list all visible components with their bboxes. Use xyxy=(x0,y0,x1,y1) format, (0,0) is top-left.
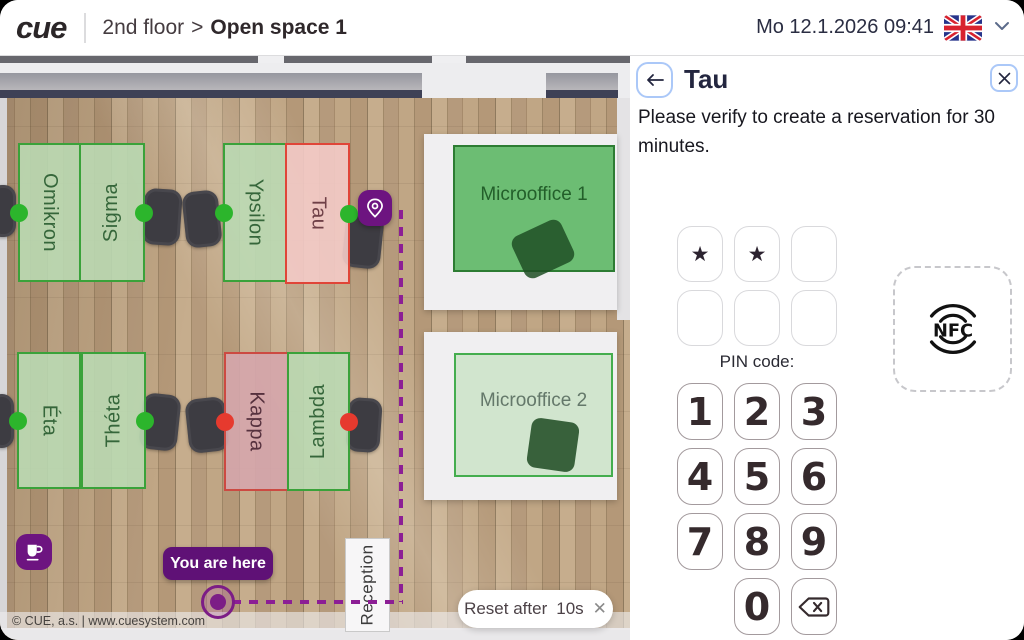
desk-sigma[interactable]: Sigma xyxy=(79,143,145,282)
breadcrumb-floor[interactable]: 2nd floor xyxy=(102,16,184,40)
microoffice-2-label: Microoffice 2 xyxy=(480,390,587,412)
desk-label: Kappa xyxy=(245,391,268,451)
backspace-icon xyxy=(797,595,831,619)
destination-pin-icon xyxy=(358,190,392,226)
key-4[interactable]: 4 xyxy=(677,448,723,505)
desk-omikron[interactable]: Omikron xyxy=(18,143,81,282)
coffee-point-button[interactable] xyxy=(16,534,52,570)
reception-label: Reception xyxy=(358,544,378,625)
window-glass xyxy=(546,73,618,90)
desk-eta[interactable]: Éta xyxy=(17,352,81,489)
window-glass xyxy=(0,73,422,90)
cue-logo: cue xyxy=(16,10,66,46)
desk-label: Lambda xyxy=(307,384,330,459)
route-path-horizontal xyxy=(232,600,403,604)
desk-status-dot xyxy=(216,413,234,431)
key-spacer xyxy=(677,578,723,635)
datetime-label: Mo 12.1.2026 09:41 xyxy=(756,16,934,39)
breadcrumb-separator: > xyxy=(191,16,203,40)
key-7[interactable]: 7 xyxy=(677,513,723,570)
numeric-keypad: 1 2 3 4 5 6 7 8 9 0 xyxy=(677,383,837,635)
pin-digit-box xyxy=(677,290,723,346)
close-button[interactable] xyxy=(990,64,1018,92)
desk-status-dot xyxy=(135,204,153,222)
pin-digit-box xyxy=(791,290,837,346)
desk-theta[interactable]: Théta xyxy=(81,352,146,489)
key-backspace[interactable] xyxy=(791,578,837,635)
window-sill xyxy=(546,90,618,98)
room-booking-app: cue 2nd floor > Open space 1 Mo 12.1.202… xyxy=(0,0,1024,640)
desk-status-dot xyxy=(136,412,154,430)
desk-status-dot xyxy=(340,413,358,431)
right-wall xyxy=(617,98,630,320)
pin-digit-box xyxy=(734,290,780,346)
reset-countdown-button[interactable]: Reset after 10s ✕ xyxy=(458,590,613,628)
desk-label: Omikron xyxy=(38,173,61,252)
left-wall xyxy=(0,98,7,630)
desk-label: Éta xyxy=(38,405,61,437)
desk-tau[interactable]: Tau xyxy=(285,143,350,284)
key-0[interactable]: 0 xyxy=(734,578,780,635)
coffee-cup-icon xyxy=(23,542,45,562)
window-sill xyxy=(0,90,430,98)
desk-label: Sigma xyxy=(100,183,123,242)
pin-digit-box: ★ xyxy=(677,226,723,282)
copyright-text: © CUE, a.s. | www.cuesystem.com xyxy=(12,612,205,630)
wall-section xyxy=(618,73,630,98)
pin-code-label: PIN code: xyxy=(677,352,837,372)
pin-digit-box xyxy=(791,226,837,282)
key-8[interactable]: 8 xyxy=(734,513,780,570)
reset-close-icon[interactable]: ✕ xyxy=(593,599,607,619)
desk-status-dot xyxy=(340,205,358,223)
key-3[interactable]: 3 xyxy=(791,383,837,440)
back-button[interactable] xyxy=(636,62,673,98)
office-chair xyxy=(526,417,580,473)
nfc-verify-button[interactable]: NFC xyxy=(893,266,1012,392)
uk-flag-icon[interactable] xyxy=(944,15,982,41)
breadcrumb-room: Open space 1 xyxy=(210,16,347,40)
pin-digit-box: ★ xyxy=(734,226,780,282)
desk-label: Tau xyxy=(306,197,329,231)
desk-label: Théta xyxy=(102,394,125,448)
key-5[interactable]: 5 xyxy=(734,448,780,505)
current-location-dot xyxy=(210,594,226,610)
reset-label: Reset after xyxy=(464,599,547,619)
key-6[interactable]: 6 xyxy=(791,448,837,505)
desk-label: Ypsilon xyxy=(244,179,267,247)
header-divider xyxy=(84,13,86,43)
microoffice-1-label: Microoffice 1 xyxy=(480,184,587,206)
key-9[interactable]: 9 xyxy=(791,513,837,570)
you-are-here-badge: You are here xyxy=(163,547,273,580)
desk-status-dot xyxy=(9,412,27,430)
desk-status-dot xyxy=(10,204,28,222)
route-path-vertical xyxy=(399,210,403,602)
wall-strip xyxy=(0,63,630,73)
desk-kappa[interactable]: Kappa xyxy=(224,352,289,491)
window-top-frame xyxy=(0,56,630,63)
svg-text:NFC: NFC xyxy=(932,321,972,342)
nfc-icon: NFC xyxy=(915,291,991,367)
breadcrumb: 2nd floor > Open space 1 xyxy=(102,16,347,40)
top-bar: cue 2nd floor > Open space 1 Mo 12.1.202… xyxy=(0,0,1024,56)
panel-title: Tau xyxy=(684,64,728,95)
floor-map: Microoffice 1 Microoffice 2 Omikron Sigm… xyxy=(0,56,630,640)
reception-desk: Reception xyxy=(345,538,390,632)
desk-lambda[interactable]: Lambda xyxy=(287,352,350,491)
chevron-down-icon[interactable] xyxy=(994,19,1010,37)
desk-ypsilon[interactable]: Ypsilon xyxy=(223,143,287,282)
current-location-marker xyxy=(201,585,235,619)
back-arrow-icon xyxy=(645,73,665,87)
close-icon xyxy=(998,72,1011,85)
key-2[interactable]: 2 xyxy=(734,383,780,440)
window-frame-gap xyxy=(432,56,466,63)
desk-status-dot xyxy=(215,204,233,222)
reservation-panel: Tau Please verify to create a reservatio… xyxy=(630,56,1024,640)
key-1[interactable]: 1 xyxy=(677,383,723,440)
window-frame-gap xyxy=(258,56,284,63)
verification-message: Please verify to create a reservation fo… xyxy=(638,104,1014,161)
wall-section xyxy=(422,73,546,98)
pin-display: ★ ★ xyxy=(677,226,837,346)
reset-countdown: 10s xyxy=(556,599,583,619)
